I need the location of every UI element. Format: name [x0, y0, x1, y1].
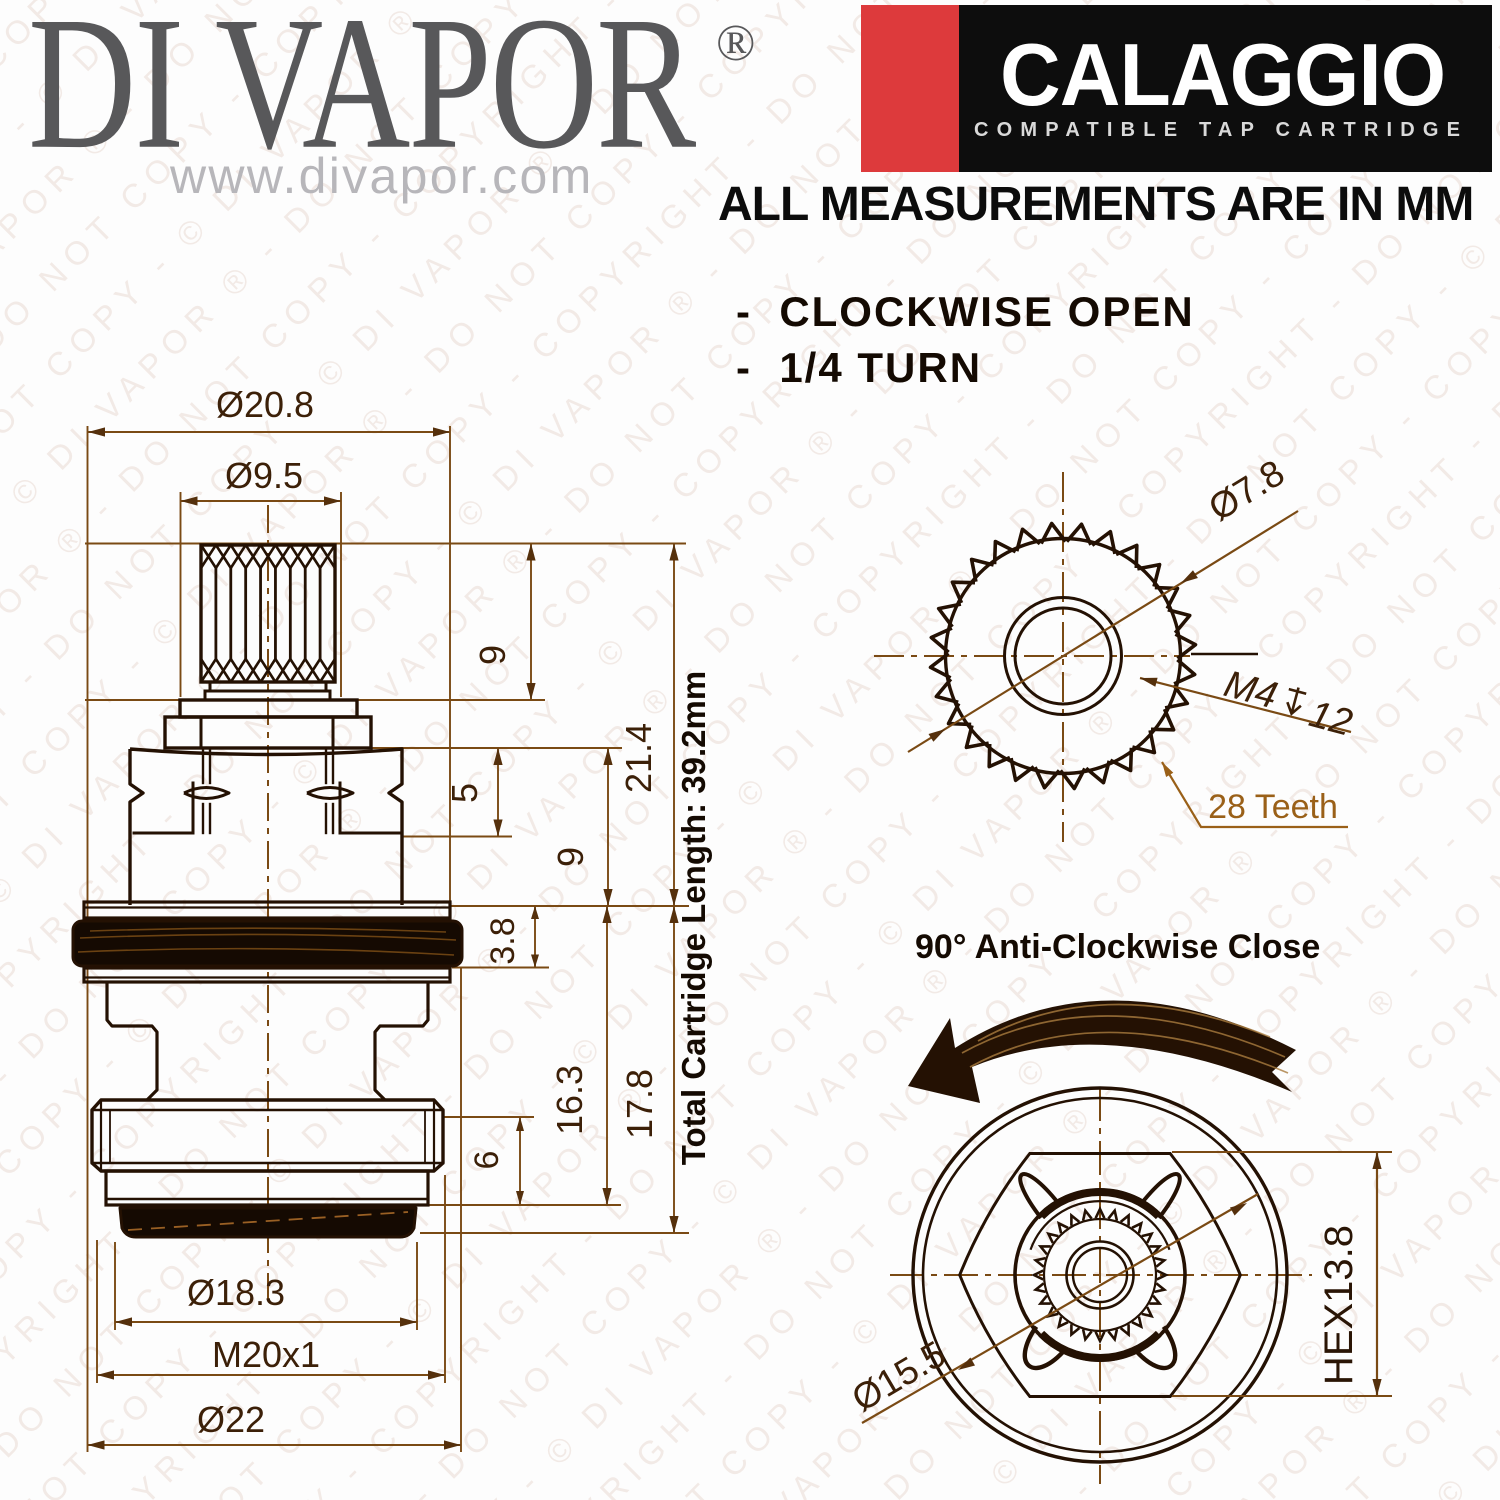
- svg-text:Ø9.5: Ø9.5: [225, 455, 303, 496]
- svg-text:17.8: 17.8: [619, 1069, 660, 1139]
- svg-text:9: 9: [550, 847, 591, 867]
- svg-text:6: 6: [468, 1151, 506, 1170]
- svg-text:3.8: 3.8: [484, 917, 522, 964]
- svg-text:Ø22: Ø22: [197, 1399, 265, 1440]
- svg-text:M4: M4: [1220, 663, 1282, 717]
- svg-text:9: 9: [472, 645, 513, 665]
- svg-text:Ø18.3: Ø18.3: [187, 1272, 285, 1313]
- svg-text:M20x1: M20x1: [212, 1334, 320, 1375]
- svg-text:5: 5: [444, 783, 485, 803]
- svg-text:90° Anti-Clockwise Close: 90° Anti-Clockwise Close: [915, 928, 1320, 966]
- svg-text:12: 12: [1305, 693, 1357, 745]
- svg-text:21.4: 21.4: [618, 723, 659, 793]
- svg-text:Ø15.5: Ø15.5: [845, 1333, 953, 1419]
- svg-text:Total Cartridge Length: 39.2mm: Total Cartridge Length: 39.2mm: [675, 671, 712, 1165]
- svg-text:16.3: 16.3: [549, 1065, 590, 1135]
- svg-text:28 Teeth: 28 Teeth: [1208, 788, 1338, 826]
- svg-text:Ø20.8: Ø20.8: [216, 384, 314, 425]
- svg-text:Ø7.8: Ø7.8: [1202, 452, 1292, 529]
- svg-text:HEX13.8: HEX13.8: [1317, 1225, 1361, 1385]
